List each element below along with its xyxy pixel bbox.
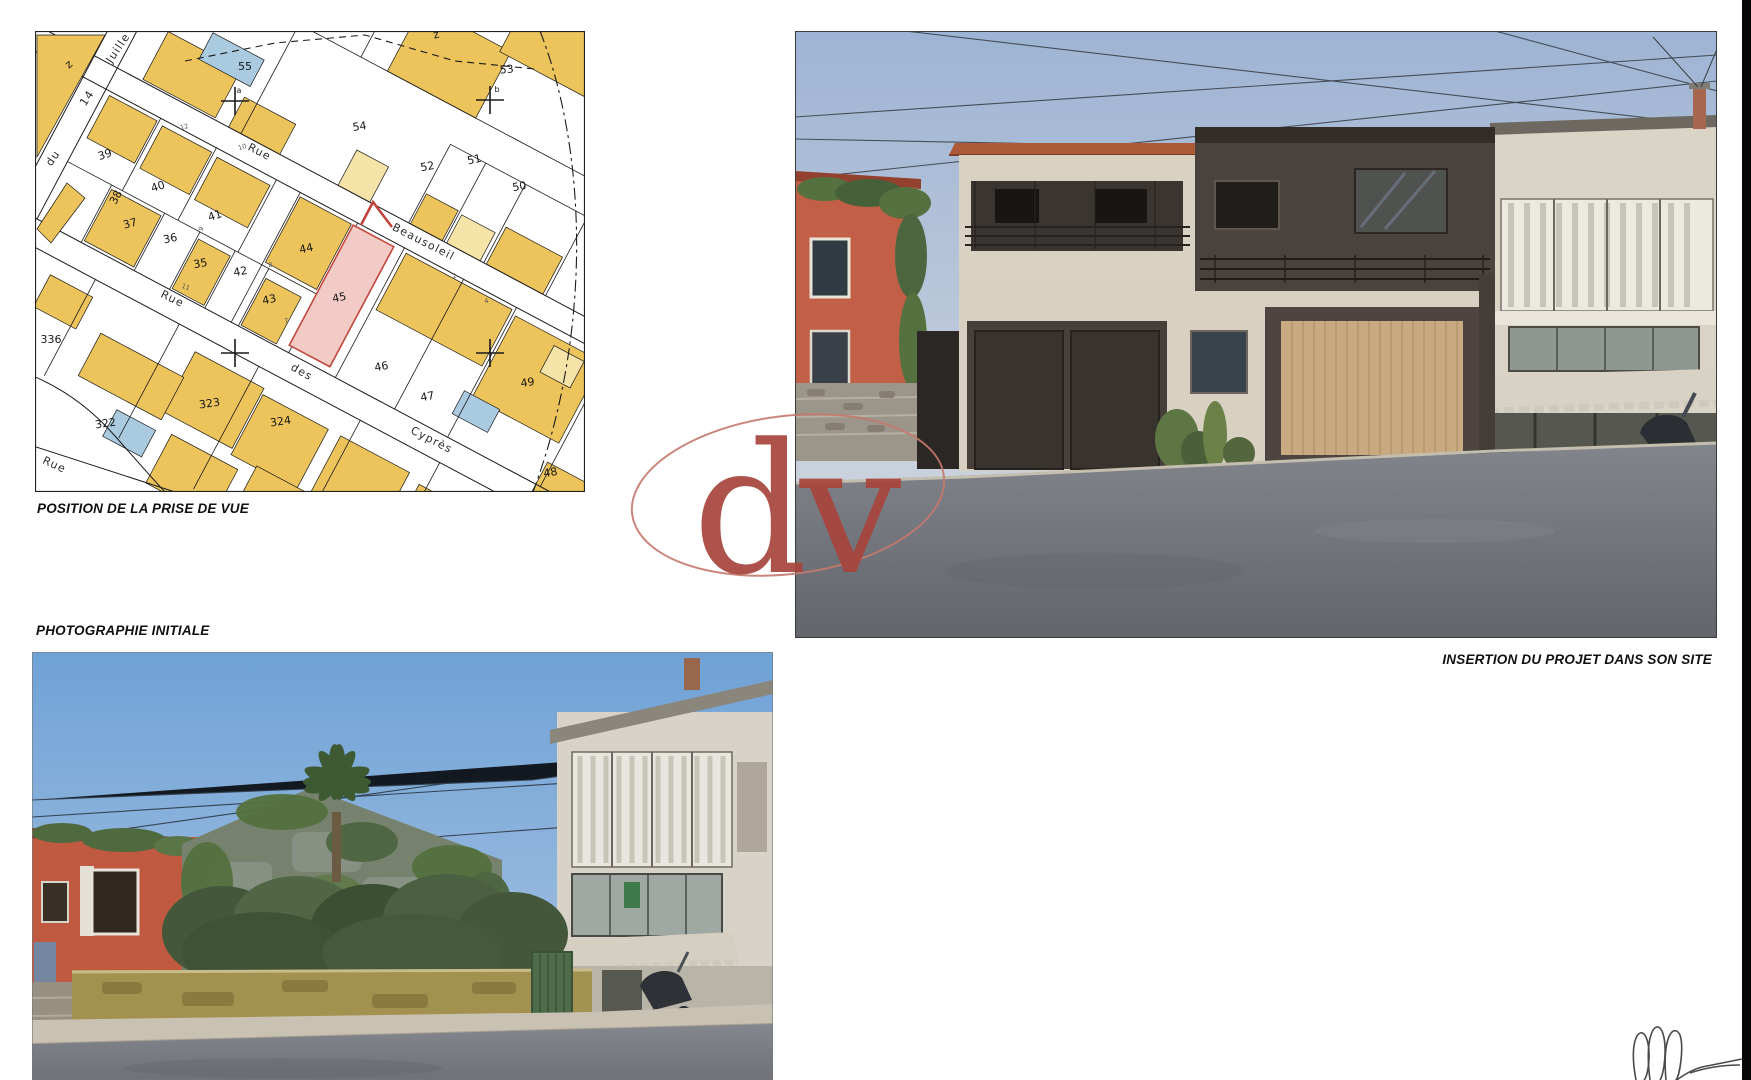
parcel-number: 336 <box>41 333 62 346</box>
parcel-number: 52 <box>419 159 435 174</box>
cadastral-map: z5553z5452515039383740364135424344454647… <box>35 31 585 492</box>
parcel-number: 48 <box>542 465 558 480</box>
render-caption: INSERTION DU PROJET DANS SON SITE <box>1442 652 1712 667</box>
window <box>811 239 849 297</box>
photo-window <box>92 870 138 934</box>
terracotta-roof-edge <box>949 143 1205 155</box>
watermark: dv <box>628 400 950 600</box>
signature <box>1590 1005 1751 1080</box>
parcel-number: 35 <box>192 256 208 271</box>
parcel-number: 42 <box>232 264 248 279</box>
parcel-number: 54 <box>352 119 368 134</box>
parcel-number: 46 <box>373 359 389 374</box>
green-sign <box>624 882 640 908</box>
parcel-number: 55 <box>238 60 252 73</box>
parcel-number: 53 <box>499 62 514 76</box>
project-building <box>949 127 1495 475</box>
signature-icon <box>1633 1027 1742 1080</box>
survey-point-letter: a <box>237 86 242 95</box>
parcel-number: 49 <box>520 375 536 390</box>
parcel-number: 50 <box>511 179 527 194</box>
map-caption: POSITION DE LA PRISE DE VUE <box>37 501 249 516</box>
photo-caption: PHOTOGRAPHIE INITIALE <box>36 623 209 638</box>
neighbor-window <box>1509 327 1699 371</box>
screen-edge-bar <box>1742 0 1751 1080</box>
watermark-letters: dv <box>693 406 902 600</box>
garden-gate <box>532 952 572 1022</box>
wooden-garage-door <box>1281 321 1463 455</box>
terrace-railing <box>1200 255 1490 283</box>
survey-point-letter: b <box>494 85 499 94</box>
parcel-number: 47 <box>419 389 435 404</box>
initial-photograph <box>32 652 773 1080</box>
document-page: { "captions": { "map": "POSITION DE LA P… <box>0 0 1751 1080</box>
